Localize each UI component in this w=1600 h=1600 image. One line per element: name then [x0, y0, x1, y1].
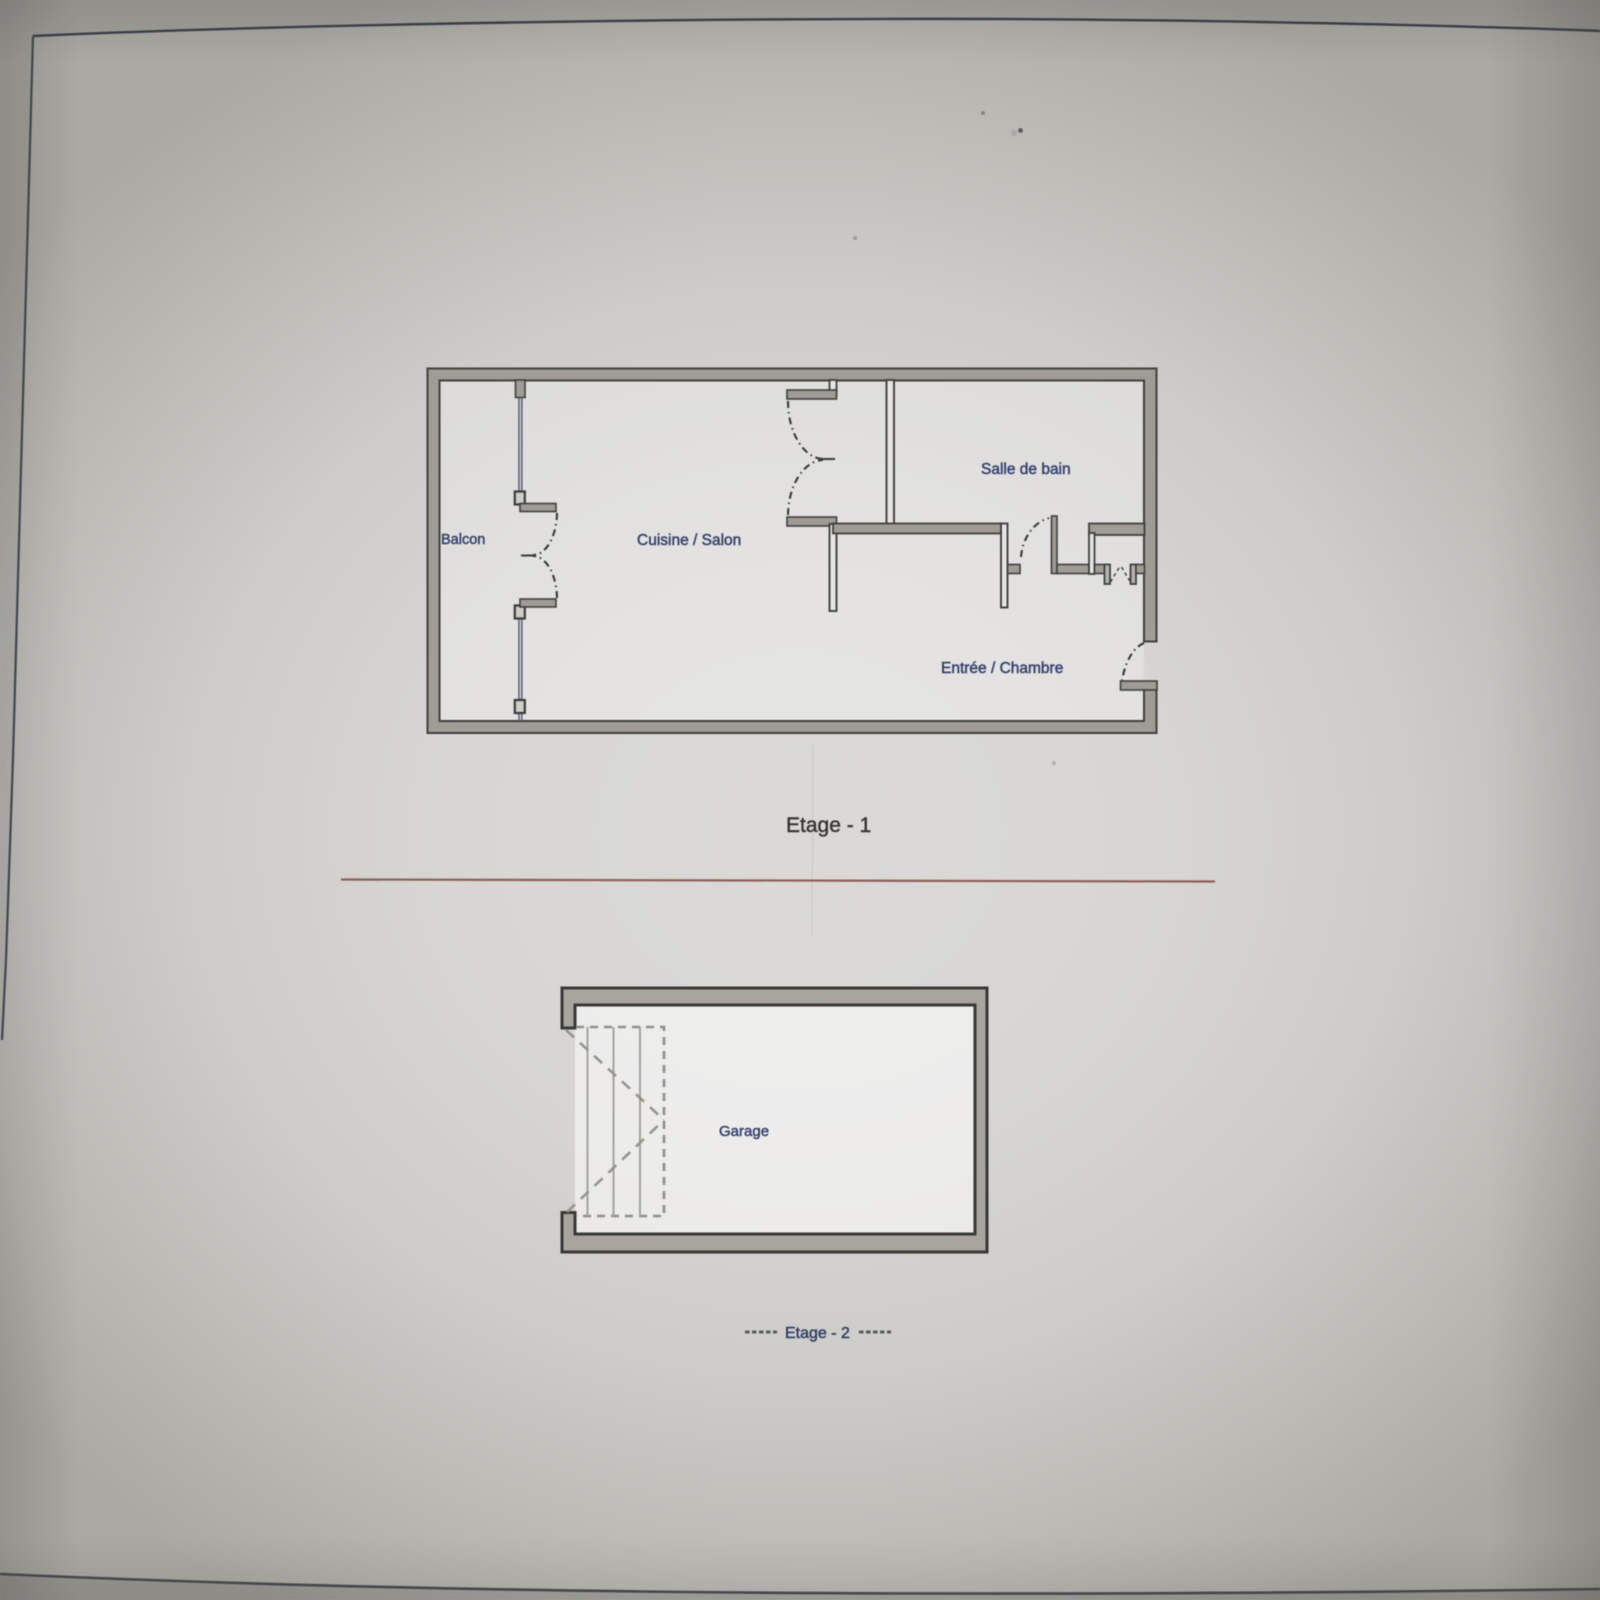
svg-text:Cuisine / Salon: Cuisine / Salon: [637, 532, 741, 549]
svg-text:Entrée / Chambre: Entrée / Chambre: [941, 660, 1063, 677]
svg-text:Garage: Garage: [719, 1123, 769, 1140]
svg-text:Salle de bain: Salle de bain: [981, 461, 1071, 478]
svg-text:Etage - 1: Etage - 1: [786, 814, 871, 837]
svg-text:Etage - 2: Etage - 2: [785, 1325, 850, 1342]
svg-text:Balcon: Balcon: [441, 532, 485, 548]
